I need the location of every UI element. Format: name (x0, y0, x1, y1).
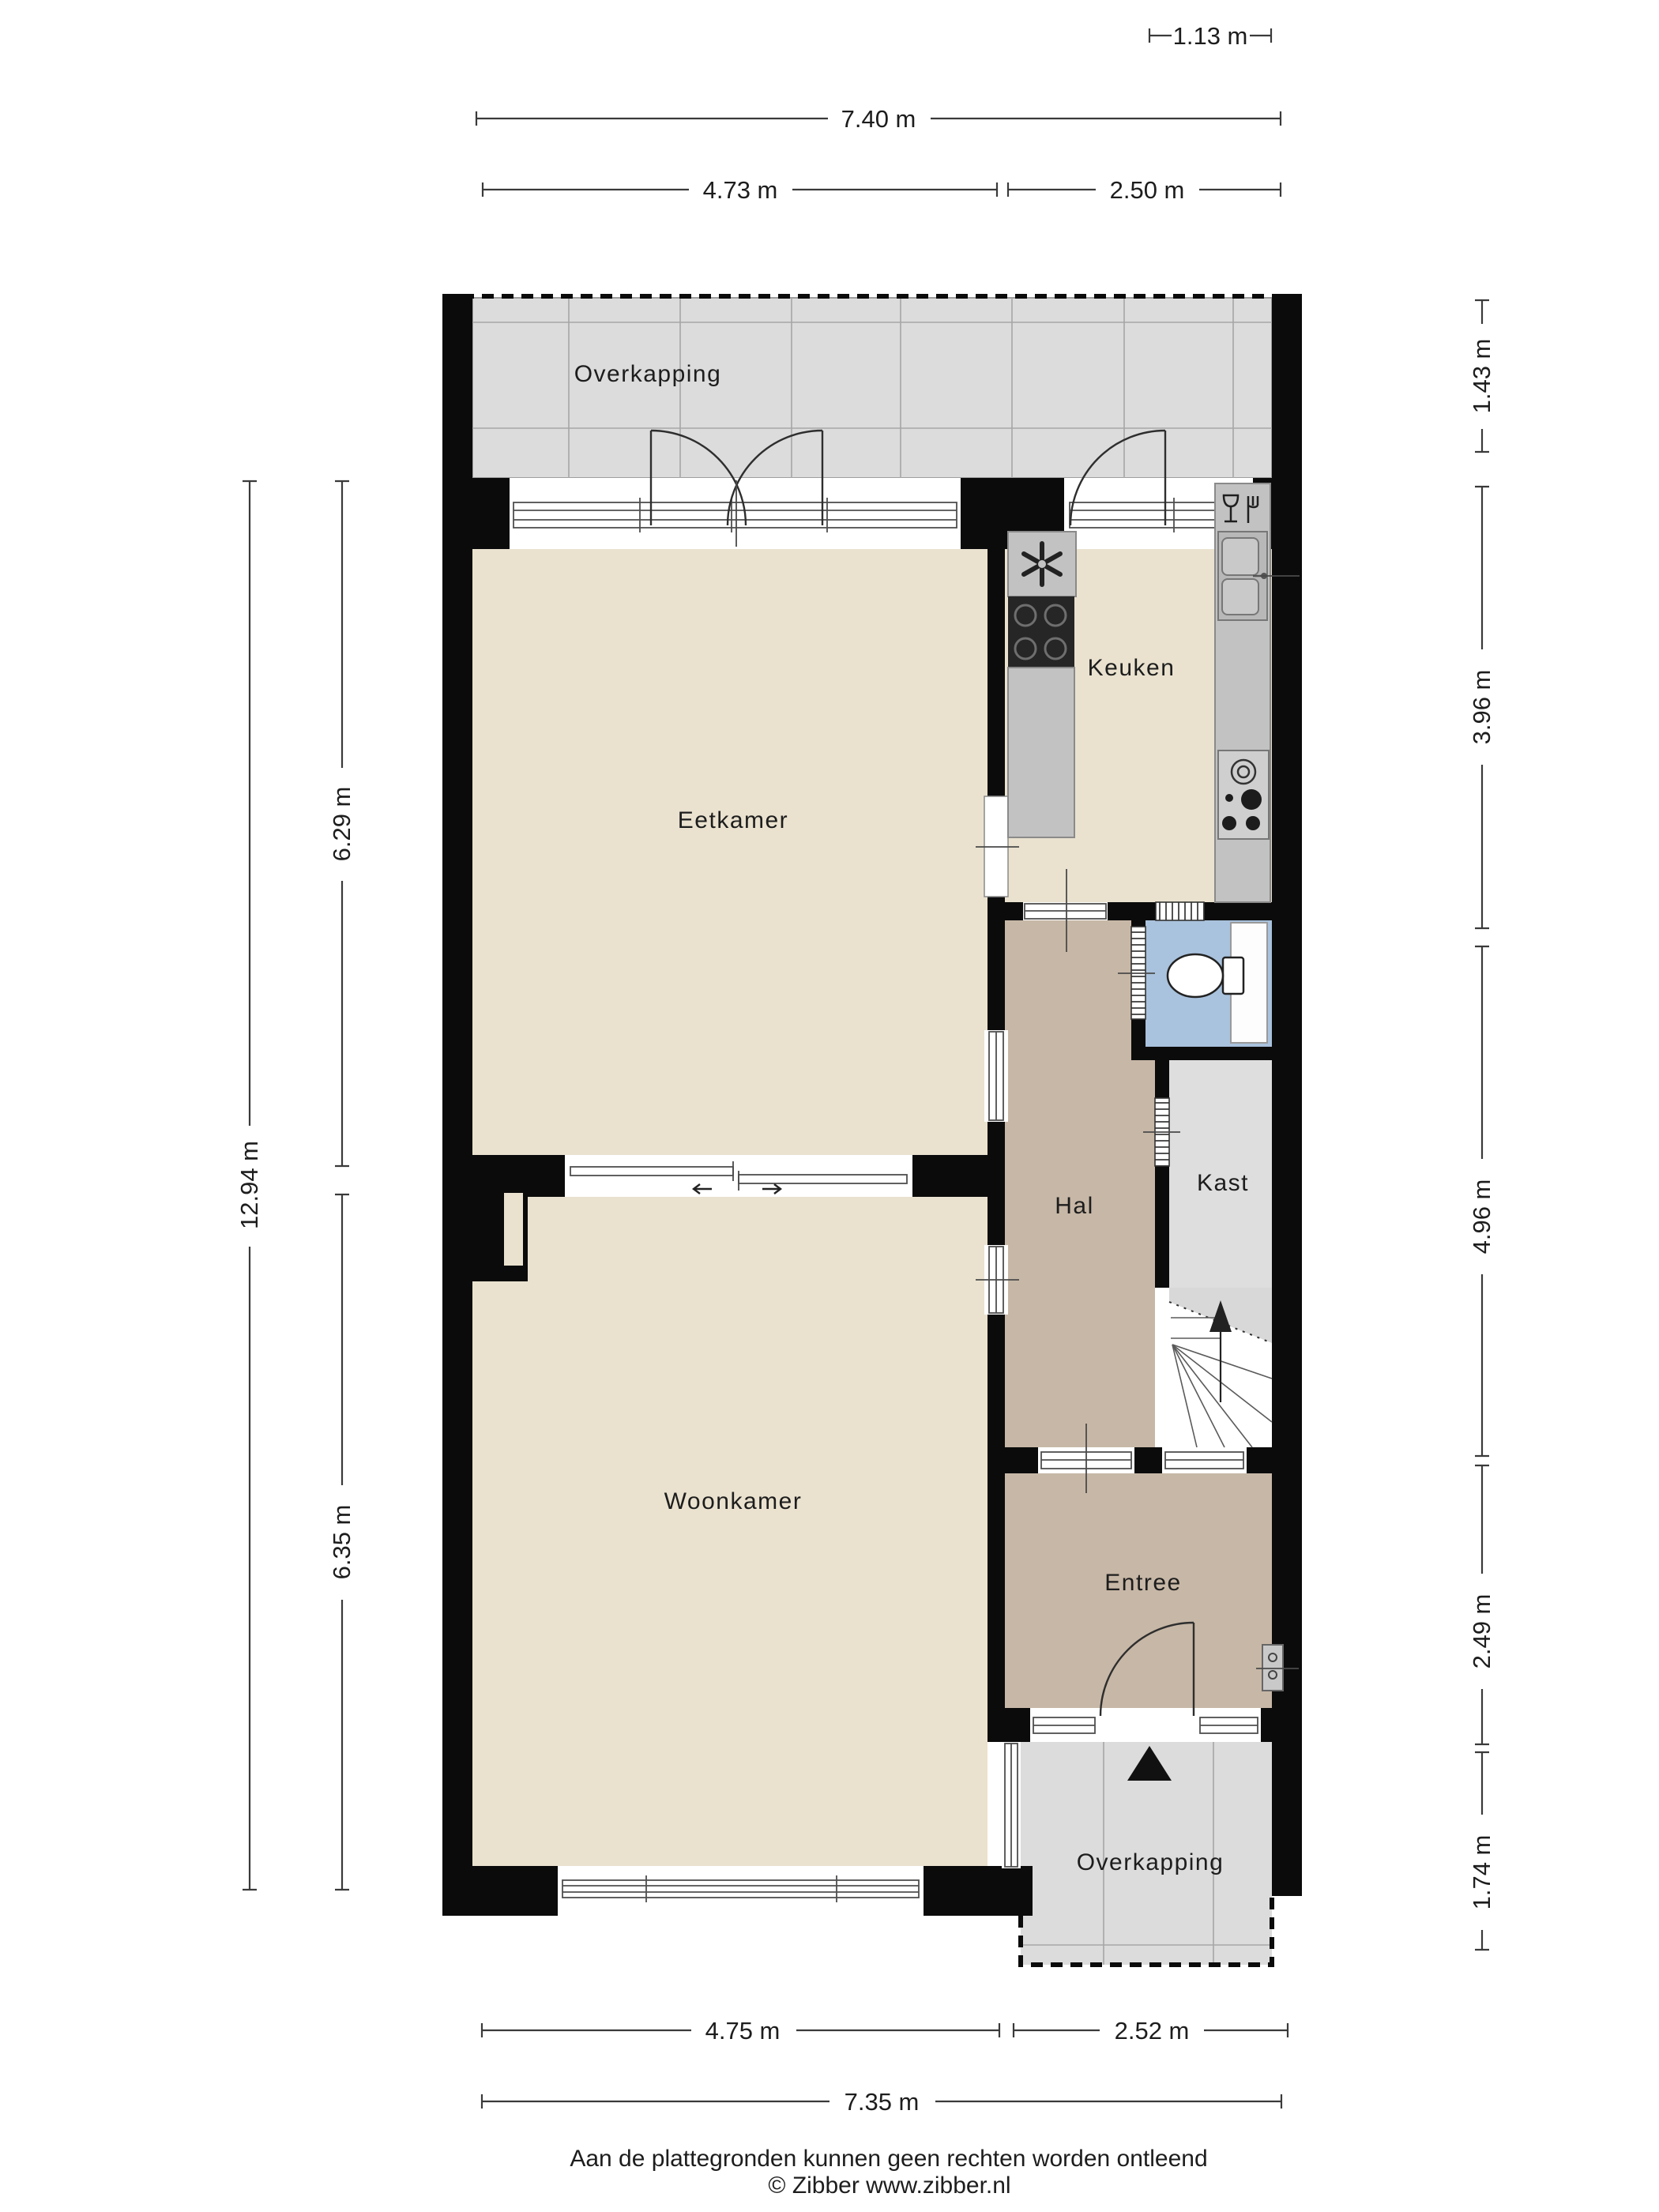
dim-right-3: 2.49 m (1468, 1465, 1495, 1744)
footer-copyright: © Zibber www.zibber.nl (768, 2172, 1010, 2199)
dim-label-top-left: 4.73 m (703, 176, 778, 204)
sink-icon-shape (1222, 538, 1258, 575)
floorplan-canvas: 1.13 m 7.40 m 4.73 m 2.50 m (0, 0, 1659, 2212)
dim-label-bottom-left: 4.75 m (705, 2017, 781, 2045)
dim-label-bottom-right: 2.52 m (1115, 2017, 1190, 2045)
dim-right-1: 3.96 m (1468, 487, 1495, 928)
dim-label-right-4: 1.74 m (1468, 1835, 1495, 1910)
dim-label-top-right: 2.50 m (1110, 176, 1185, 204)
dim-label-left-upper: 6.29 m (328, 787, 355, 862)
dim-label-top-small: 1.13 m (1173, 22, 1248, 50)
window-woonkamer-bottom (558, 1866, 924, 1916)
window-woonkamer-bottom-shape (558, 1866, 924, 1916)
kitchen-island-shape (1038, 560, 1046, 568)
island-counter (1008, 668, 1074, 837)
wall-top-pier-left (472, 478, 510, 549)
room-label-keuken: Keuken (1088, 655, 1176, 681)
toilet-icon-shape (1168, 954, 1223, 997)
dim-left-upper: 6.29 m (328, 481, 355, 1166)
eetkamer-floor (472, 549, 987, 1155)
window-hal-entree-right (1162, 1447, 1247, 1473)
window-keuken-hal (1023, 902, 1108, 920)
dim-right-0: 1.43 m (1468, 300, 1495, 452)
wall-below-stairs-c (1247, 1447, 1272, 1473)
gas-hob-icon-shape (1246, 816, 1260, 830)
window-eetkamer-hal (984, 1030, 1008, 1122)
wall-keuken-bottom-a (987, 902, 1023, 920)
floorplan-page: { "rooms": { "overkapping_top": "Overkap… (0, 0, 1659, 2212)
dim-right-2: 4.96 m (1468, 946, 1495, 1456)
door-keuken-toilet (1156, 902, 1204, 920)
room-label-overkapping-bottom: Overkapping (1077, 1849, 1224, 1875)
dim-label-right-3: 2.49 m (1468, 1594, 1495, 1669)
kitchen-island (1008, 532, 1076, 837)
woonkamer-floor (472, 1197, 987, 1866)
wall-below-stairs-b (1134, 1447, 1162, 1473)
dim-label-top-total: 7.40 m (841, 105, 916, 133)
dim-label-right-0: 1.43 m (1468, 339, 1495, 414)
room-label-woonkamer: Woonkamer (664, 1488, 803, 1514)
dim-top-small: 1.13 m (1149, 22, 1271, 50)
gas-hob-icon (1218, 750, 1269, 839)
kitchen-counter-right (1215, 483, 1270, 902)
chimney-inset (504, 1193, 523, 1266)
sink-icon (1218, 532, 1267, 620)
dim-label-right-1: 3.96 m (1468, 670, 1495, 745)
dim-bottom-total: 7.35 m (482, 2088, 1281, 2116)
front-door-opening (1098, 1708, 1197, 1742)
wall-left (442, 294, 472, 1916)
dim-left-total: 12.94 m (235, 481, 263, 1890)
wall-eetkamer-woonkamer-right (912, 1155, 987, 1197)
sliding-door-eetkamer-woonkamer (565, 1155, 912, 1197)
sink-icon-shape (1222, 579, 1258, 615)
wall-keuken-bottom-c (1204, 902, 1272, 920)
room-label-entree: Entree (1104, 1570, 1181, 1596)
dim-bottom-left: 4.75 m (482, 2017, 999, 2045)
dim-label-left-lower: 6.35 m (328, 1505, 355, 1580)
dim-top-total: 7.40 m (476, 105, 1281, 133)
gas-hob-icon-shape (1225, 794, 1233, 802)
wall-toilet-bottom (1131, 1047, 1272, 1060)
toilet-icon (1168, 954, 1243, 997)
canopy-top-floor (472, 298, 1272, 478)
wall-woonkamer-bottom-left (442, 1866, 558, 1916)
dim-label-right-2: 4.96 m (1468, 1179, 1495, 1255)
toilet-icon-shape (1223, 957, 1243, 994)
dim-label-left-total: 12.94 m (235, 1141, 263, 1229)
dim-label-bottom-total: 7.35 m (845, 2088, 920, 2116)
room-label-kast: Kast (1197, 1170, 1249, 1196)
dim-top-right: 2.50 m (1008, 176, 1281, 204)
dim-top-left: 4.73 m (483, 176, 997, 204)
footer: Aan de plattegronden kunnen geen rechten… (570, 2146, 1207, 2199)
wall-below-stairs-a (1005, 1447, 1038, 1473)
room-label-eetkamer: Eetkamer (678, 807, 788, 833)
dim-left-lower: 6.35 m (328, 1194, 355, 1890)
wall-woonkamer-bottom-right (924, 1866, 1033, 1916)
wall-hal-kast (1155, 1060, 1169, 1288)
window-facade-step (1002, 1742, 1021, 1868)
gas-hob-icon-shape (1241, 789, 1262, 810)
meter-cabinet (1262, 1645, 1283, 1691)
gas-hob-icon-shape (1222, 816, 1236, 830)
wall-keuken-bottom-b (1108, 902, 1156, 920)
dim-right-4: 1.74 m (1468, 1752, 1495, 1950)
dim-bottom-right: 2.52 m (1014, 2017, 1288, 2045)
window-entree-left (1030, 1708, 1098, 1742)
window-entree-right (1197, 1708, 1261, 1742)
room-label-hal: Hal (1055, 1193, 1094, 1219)
room-label-overkapping-top: Overkapping (574, 361, 722, 387)
footer-disclaimer: Aan de plattegronden kunnen geen rechten… (570, 2146, 1207, 2172)
